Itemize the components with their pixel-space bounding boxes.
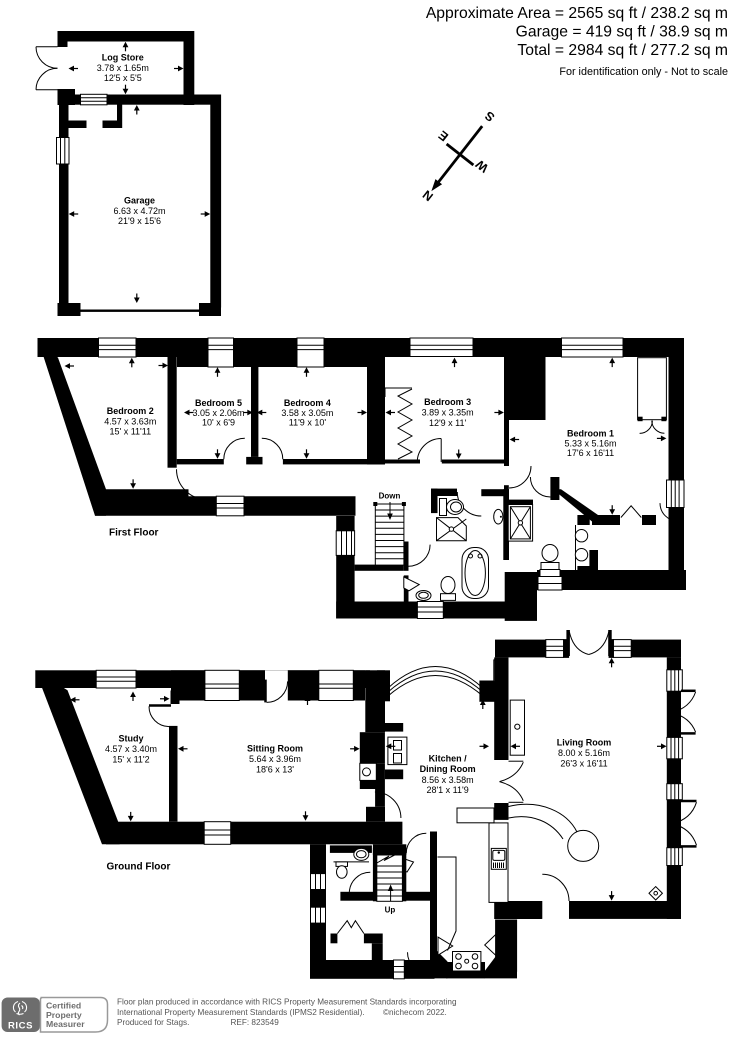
svg-text:Dining Room: Dining Room (420, 764, 476, 774)
svg-text:Log Store: Log Store (102, 53, 144, 63)
svg-text:5.64 x 3.96m: 5.64 x 3.96m (249, 754, 301, 764)
svg-text:Garage: Garage (124, 196, 155, 206)
svg-text:W: W (473, 157, 491, 175)
svg-text:International Property Measure: International Property Measurement Stand… (117, 1008, 365, 1017)
svg-text:18'6 x 13': 18'6 x 13' (256, 764, 294, 774)
svg-text:4.57 x 3.63m: 4.57 x 3.63m (104, 416, 156, 426)
svg-text:26'3 x 16'11: 26'3 x 16'11 (560, 759, 607, 769)
svg-text:Produced for Stags.: Produced for Stags. (117, 1018, 189, 1027)
svg-text:11'9 x 10': 11'9 x 10' (289, 417, 327, 427)
svg-text:15' x 11'11: 15' x 11'11 (109, 427, 151, 437)
svg-text:Bedroom 3: Bedroom 3 (424, 397, 471, 407)
svg-text:Bedroom 2: Bedroom 2 (107, 406, 154, 416)
svg-text:Down: Down (379, 492, 401, 501)
svg-text:Bedroom 5: Bedroom 5 (195, 398, 242, 408)
svg-text:4.57 x 3.40m: 4.57 x 3.40m (105, 744, 157, 754)
svg-text:8.00 x 5.16m: 8.00 x 5.16m (558, 748, 610, 758)
svg-text:3.78 x 1.65m: 3.78 x 1.65m (97, 63, 149, 73)
svg-text:28'1 x 11'9: 28'1 x 11'9 (426, 785, 468, 795)
svg-text:Up: Up (385, 906, 396, 915)
svg-text:12'5 x 5'5: 12'5 x 5'5 (104, 73, 142, 83)
svg-text:17'6 x 16'11: 17'6 x 16'11 (567, 448, 614, 458)
svg-text:Living Room: Living Room (557, 738, 612, 748)
svg-text:12'9 x 11': 12'9 x 11' (429, 418, 467, 428)
svg-text:RICS: RICS (8, 1021, 33, 1032)
svg-text:REF: 823549: REF: 823549 (231, 1018, 280, 1027)
svg-text:Measurer: Measurer (46, 1019, 85, 1029)
svg-text:Floor plan produced in accorda: Floor plan produced in accordance with R… (117, 998, 457, 1007)
svg-text:10' x 6'9: 10' x 6'9 (202, 417, 235, 427)
svg-text:Garage = 419 sq ft / 38.9 sq m: Garage = 419 sq ft / 38.9 sq m (516, 24, 728, 41)
svg-text:Bedroom 4: Bedroom 4 (284, 398, 331, 408)
svg-text:8.56 x 3.58m: 8.56 x 3.58m (422, 775, 474, 785)
svg-text:Sitting Room: Sitting Room (247, 744, 303, 754)
svg-text:21'9 x 15'6: 21'9 x 15'6 (118, 216, 161, 226)
svg-text:Study: Study (118, 734, 143, 744)
svg-text:E: E (436, 128, 451, 144)
svg-text:S: S (482, 108, 497, 124)
svg-text:3.89 x 3.35m: 3.89 x 3.35m (422, 407, 474, 417)
svg-text:15' x 11'2: 15' x 11'2 (112, 754, 149, 764)
svg-text:Ground Floor: Ground Floor (107, 861, 171, 872)
svg-text:Kitchen /: Kitchen / (429, 753, 468, 763)
svg-text:6.63 x 4.72m: 6.63 x 4.72m (113, 206, 165, 216)
svg-text:Bedroom 1: Bedroom 1 (567, 428, 614, 438)
svg-text:5.33 x 5.16m: 5.33 x 5.16m (564, 439, 616, 449)
svg-text:First Floor: First Floor (109, 528, 159, 539)
svg-text:Approximate Area = 2565 sq ft: Approximate Area = 2565 sq ft / 238.2 sq… (426, 5, 728, 22)
svg-text:For identification only - Not: For identification only - Not to scale (559, 66, 728, 78)
svg-text:©nichecom 2022.: ©nichecom 2022. (383, 1008, 447, 1017)
svg-text:Total = 2984 sq ft / 277.2 sq: Total = 2984 sq ft / 277.2 sq m (517, 42, 728, 59)
